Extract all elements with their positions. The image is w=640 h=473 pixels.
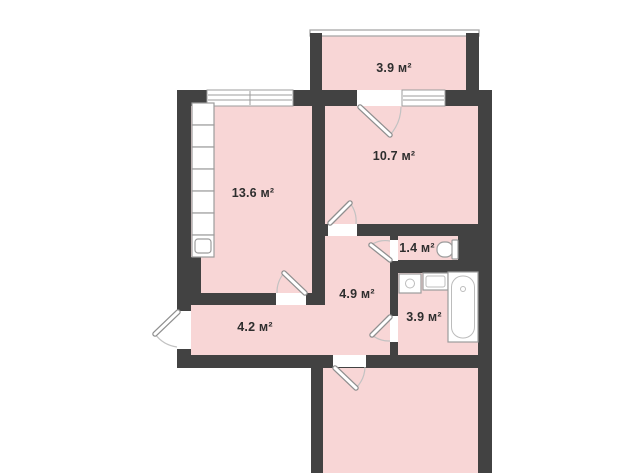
room-lower-floor [323,367,478,473]
washing-machine [399,274,421,293]
cabinet-cell [192,213,214,235]
label-wc: 1.4 м² [399,241,434,255]
opening-lower-room-door [333,355,366,367]
opening-bathroom-door [390,316,398,342]
wall-lower-left [311,367,323,473]
cabinet-cell [192,103,214,125]
label-bedroom: 10.7 м² [373,149,416,163]
kitchen-sink [195,239,211,253]
balcony-glazing-rail [310,30,479,36]
bathroom-sink [423,273,448,290]
opening-bedroom-door [328,224,357,236]
floor-plan: 3.9 м² 13.6 м² 10.7 м² 1.4 м² 4.9 м² 3.9… [0,0,640,473]
wall-balcony-right [466,33,479,96]
cabinet-cell [192,191,214,213]
label-bathroom: 3.9 м² [406,310,441,324]
label-hallway: 4.9 м² [339,287,374,301]
bathtub [448,272,478,342]
opening-entrance-door [177,311,191,349]
window-balcony [402,90,445,106]
cabinet-cell [192,169,214,191]
cabinet-cell [192,125,214,147]
floor-plan-drawing: 3.9 м² 13.6 м² 10.7 м² 1.4 м² 4.9 м² 3.9… [0,0,640,473]
wall-right [478,90,492,473]
label-kitchen: 13.6 м² [232,186,275,200]
label-balcony: 3.9 м² [376,61,411,75]
window-kitchen [207,90,293,106]
toilet [437,240,458,259]
opening-balcony-door [357,90,402,106]
kitchen-cabinets [192,103,214,257]
opening-kitchen-door [276,293,306,305]
wall-kitchen-pilaster [187,257,201,295]
entrance-door [155,312,178,347]
wall-kitchen-bedroom [312,106,325,305]
wall-balcony-left [310,33,322,96]
wall-wc-bathroom [390,260,492,273]
wall-wc-right-chunk [458,236,492,260]
cabinet-cell [192,147,214,169]
label-corridor: 4.2 м² [237,320,272,334]
